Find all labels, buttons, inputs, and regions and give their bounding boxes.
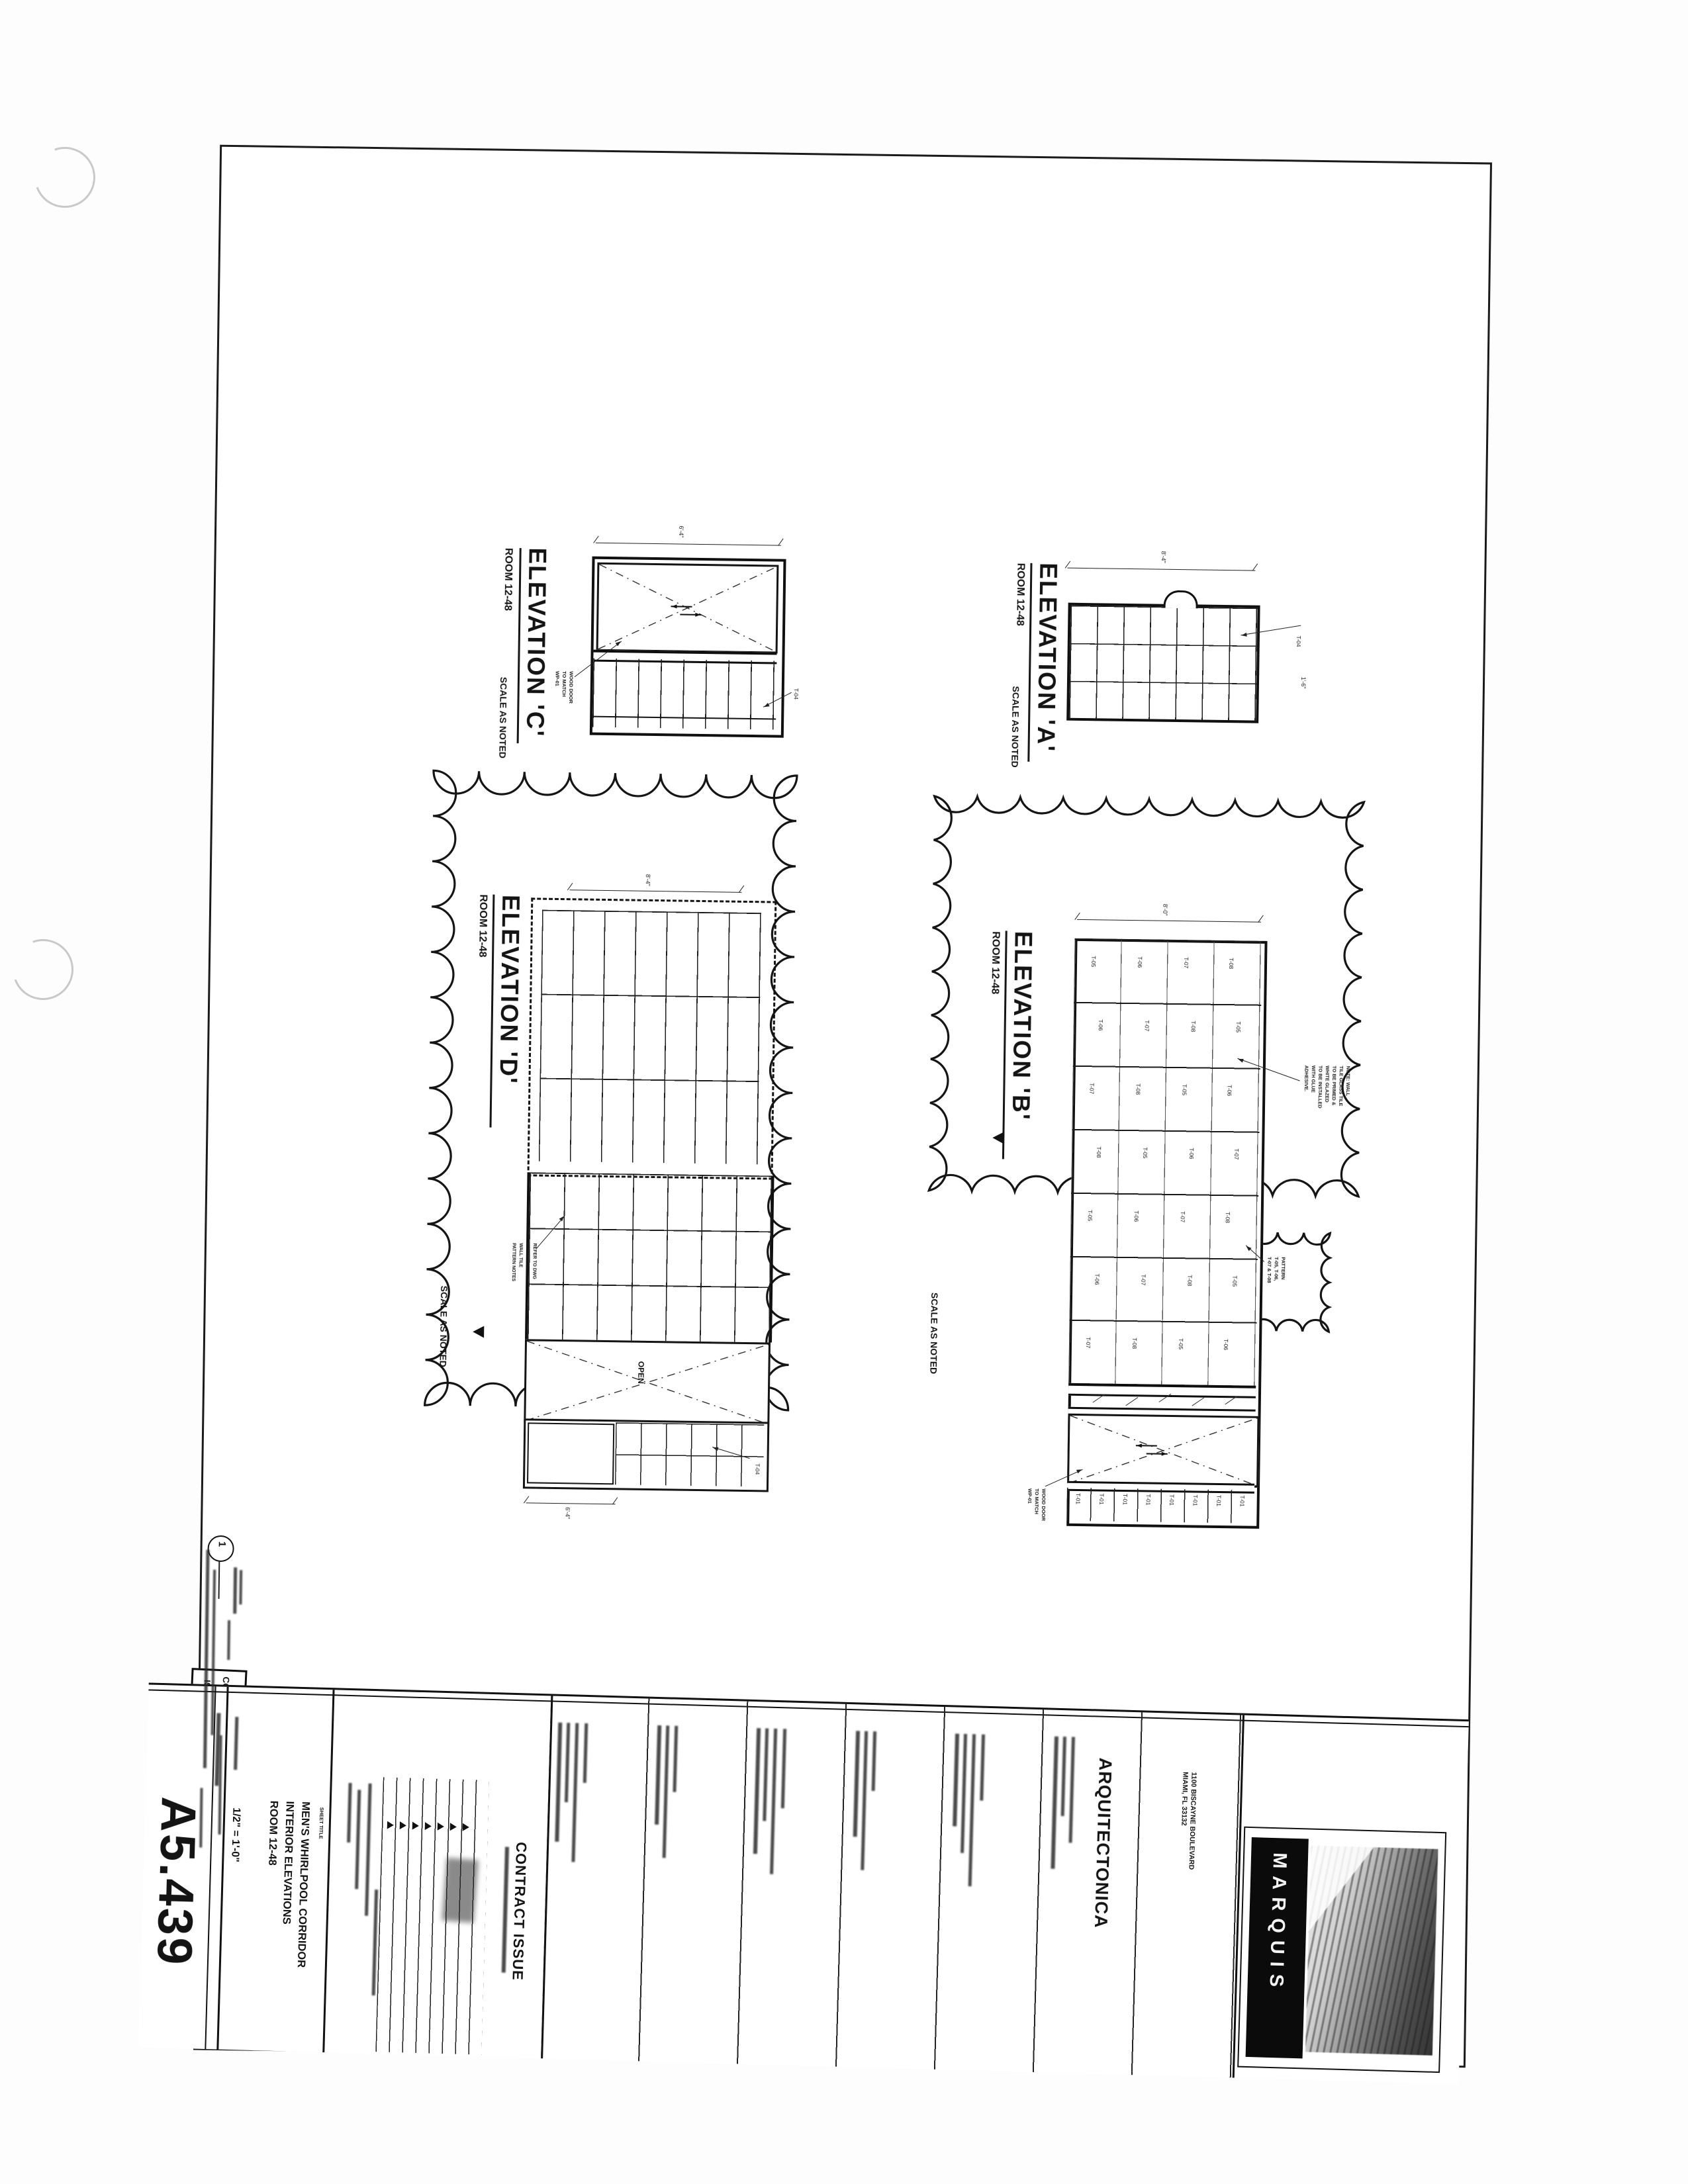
illegible-text — [502, 1847, 509, 1973]
tile-tag: T-08 — [1131, 1338, 1138, 1349]
tile-tag: T-08 — [1186, 1275, 1193, 1286]
text-line: PATTERN — [1279, 1257, 1286, 1283]
glass-arrow-icon — [680, 614, 701, 615]
glass-arrow-icon — [671, 606, 692, 607]
elevation-d-tiles-lower — [525, 1172, 774, 1342]
tile-tag: T-07 — [1088, 1083, 1095, 1094]
tile-tag: T-07 — [1140, 1274, 1147, 1285]
text-line: TO BE PRIMED & — [1330, 1066, 1337, 1109]
revision-delta-icon — [450, 1823, 457, 1831]
elevation-a-scale: SCALE AS NOTED — [1009, 686, 1021, 767]
illegible-text — [355, 1790, 361, 1889]
elevation-b-scale: SCALE AS NOTED — [928, 1293, 940, 1374]
open-x-icon — [526, 1341, 769, 1424]
tile-tag: T-06 — [1094, 1273, 1100, 1285]
elevation-b-mirror — [1067, 1414, 1259, 1488]
elevation-b-base-tiles: T-01T-01T-01T-01T-01T-01T-01T-01 — [1066, 1488, 1254, 1524]
tile-tag: T-08 — [1096, 1146, 1102, 1158]
mirror-x-icon — [1069, 1416, 1257, 1486]
tile-tag: T-08 — [1135, 1083, 1141, 1095]
revision-number: 1 — [216, 1541, 228, 1547]
tile-tag: T-06 — [1223, 1339, 1229, 1350]
glass-arrow-icon — [1147, 1453, 1168, 1454]
tile-tag: T-05 — [1181, 1084, 1188, 1095]
door-note: WOOD DOORTO MATCHWP-01 — [1025, 1488, 1047, 1521]
elevation-b-room: ROOM 12-48 — [988, 931, 1001, 994]
elevation-a-drawing — [1066, 603, 1260, 723]
base-tiles — [615, 1422, 764, 1486]
tile-tag: T-05 — [1178, 1338, 1184, 1349]
text-line: TO BE INSTALLED — [1316, 1066, 1323, 1109]
refer-note: REFER TO DWGA5-448 FORWALL TILEPATTERN N… — [509, 1243, 538, 1282]
revision-delta-icon — [400, 1821, 406, 1829]
open-label: OPEN — [636, 1361, 645, 1384]
tile-note: NOTE: WALLTILE GLASS TILETO BE PRIMED &W… — [1302, 1066, 1351, 1109]
base-blank-panel — [527, 1422, 614, 1484]
revision-marker-stem — [218, 1561, 220, 1599]
tile-tag: T-05 — [1142, 1147, 1149, 1158]
tile-tag: T-01 — [1121, 1494, 1128, 1505]
developer-logo-box: MARQUIS — [1237, 1827, 1446, 2073]
soap-niche-bump — [1164, 590, 1198, 609]
tile-tag: T-07 — [1085, 1337, 1092, 1348]
text-line: WOOD DOOR — [567, 671, 574, 704]
tile-tag: T-06 — [1098, 1019, 1104, 1030]
illegible-text — [233, 1567, 237, 1614]
text-line: PATTERN NOTES — [509, 1243, 516, 1281]
tile-tag: T-01 — [1192, 1494, 1199, 1506]
elevation-b-tile-field: T-05T-06T-07T-08T-06T-07T-08T-05T-07T-08… — [1068, 938, 1262, 1388]
text-line: ADHESIVE. — [1302, 1066, 1309, 1109]
sheet-title-label: SHEET TITLE — [318, 1807, 324, 1839]
tile-tag: T-05 — [1231, 1275, 1238, 1287]
illegible-text — [365, 1784, 372, 1916]
tile-tag: T-07 — [1233, 1148, 1240, 1160]
text-line: TO MATCH — [1033, 1488, 1040, 1521]
logo-band: MARQUIS — [1246, 1837, 1309, 2058]
elevation-d-title: ELEVATION 'D' — [494, 895, 524, 1085]
text-line: A5-448 FOR — [523, 1243, 530, 1281]
tile-tag: T-08 — [1225, 1212, 1231, 1223]
elevation-c-title: ELEVATION 'C' — [521, 547, 551, 737]
tile-tag: T-07 — [1180, 1211, 1186, 1222]
tile-tag: T-06 — [1226, 1085, 1233, 1096]
building-rendering-image — [1305, 1846, 1438, 2056]
elevation-c-mirror — [596, 563, 779, 654]
dimension-label: 8'-4" — [645, 874, 651, 886]
dimension-label: 1'-6" — [1300, 677, 1307, 689]
project-logo: MARQUIS — [1264, 1852, 1290, 1995]
tile-tag: T-04 — [793, 688, 800, 700]
dimension-label: 8'-0" — [1162, 904, 1168, 916]
elevation-d-tiles-upper — [539, 910, 761, 1165]
drawing-sheet: ELEVATION 'C' ROOM 12-48 SCALE AS NOTED … — [193, 145, 1492, 2068]
sheet-scale: 1/2" = 1'-0" — [228, 1807, 242, 1862]
dimension-label: 8'-4" — [1160, 551, 1167, 563]
scanned-page: ELEVATION 'C' ROOM 12-48 SCALE AS NOTED … — [0, 0, 1688, 2184]
dimension-line — [526, 1502, 616, 1504]
text-line: NOTE: WALL — [1344, 1066, 1351, 1109]
elevation-d-scale: SCALE AS NOTED — [438, 1286, 449, 1367]
elevation-c-room: ROOM 12-48 — [501, 548, 514, 611]
elevation-c-scale: SCALE AS NOTED — [497, 677, 509, 758]
text-line: TO MATCH — [560, 671, 567, 704]
door-note: WOOD DOORTO MATCHWP-01 — [553, 671, 574, 704]
tile-tag: T-06 — [1137, 956, 1143, 968]
trim-band — [1068, 1383, 1256, 1398]
sheet-title: MEN'S WHIRLPOOL CORRIDORINTERIOR ELEVATI… — [261, 1800, 314, 1968]
hole-punch-icon — [24, 137, 105, 218]
project-address: 1100 BISCAYNE BOULEVARDMIAMI, FL 33132 — [1178, 1772, 1197, 1870]
consultant-columns — [541, 1696, 1243, 2077]
dimension-label: 6'-4" — [678, 525, 684, 537]
tile-tag: T-05 — [1235, 1021, 1242, 1032]
tile-tag: T-07 — [1144, 1020, 1150, 1031]
text-line: WALL TILE — [516, 1243, 524, 1281]
tile-tag: T-05 — [1090, 956, 1097, 967]
tile-tag: T-01 — [1239, 1495, 1245, 1506]
approval-stamp-blur — [442, 1858, 478, 1923]
illegible-text — [239, 1570, 242, 1604]
tile-tag: T-06 — [1188, 1148, 1195, 1159]
dimension-line — [596, 543, 781, 546]
text-line: WHITE GLAZED — [1323, 1066, 1331, 1109]
revision-delta-icon — [438, 1823, 444, 1831]
text-line: WP-01 — [1025, 1488, 1033, 1521]
dimension-label: 6'-4" — [564, 1507, 571, 1519]
elevation-a-room: ROOM 12-48 — [1013, 563, 1026, 626]
illegible-text — [347, 1783, 352, 1843]
north-flag-icon — [473, 1326, 484, 1338]
hole-punch-icon — [3, 929, 83, 1010]
illegible-text — [227, 1620, 230, 1660]
north-flag-icon — [992, 1132, 1004, 1144]
tile-tag: T-01 — [1145, 1494, 1152, 1505]
revision-delta-icon — [387, 1821, 394, 1829]
elevation-d-open-panel — [524, 1339, 771, 1426]
text-line: WP-01 — [553, 671, 560, 704]
text-line: T-05, T-06, — [1272, 1257, 1280, 1283]
dimension-line — [1067, 568, 1255, 571]
tile-tag: T-08 — [1228, 958, 1235, 969]
tile-tag: T-07 — [1183, 957, 1190, 968]
text-line: T-07 & T-08 — [1265, 1257, 1272, 1283]
tile-tag: T-04 — [1295, 635, 1302, 647]
revision-delta-icon — [463, 1823, 469, 1831]
title-block-divider — [322, 1690, 334, 2052]
sheet-number: A5.439 — [146, 1796, 207, 1968]
revision-1-marker: 1 — [207, 1535, 234, 1563]
tile-tag: T-06 — [1133, 1210, 1140, 1222]
tile-tag: T-08 — [1190, 1021, 1197, 1032]
elevation-b-title: ELEVATION 'B' — [1007, 931, 1037, 1120]
title-block: A5.439 1/2" = 1'-0" MEN'S WHIRLPOOL CORR… — [138, 1682, 1469, 2083]
tile-tag: T-01 — [1168, 1494, 1175, 1506]
elevation-a-title: ELEVATION 'A' — [1031, 563, 1062, 752]
issue-label: CONTRACT ISSUE — [508, 1842, 530, 1981]
glass-arrow-icon — [1136, 1445, 1157, 1446]
tile-tag: T-05 — [1087, 1210, 1094, 1221]
mirror-x-icon — [598, 565, 777, 652]
text-line: TILE GLASS TILE — [1337, 1066, 1344, 1109]
pattern-note: PATTERNT-05, T-06,T-07 & T-08 — [1265, 1257, 1286, 1283]
tile-tag: T-01 — [1098, 1493, 1105, 1504]
tile-tag: T-01 — [1215, 1495, 1222, 1506]
tile-tag: T-01 — [1075, 1493, 1082, 1504]
revision-delta-icon — [412, 1822, 419, 1830]
revision-delta-icon — [425, 1822, 432, 1830]
text-line: WOOD DOOR — [1039, 1488, 1047, 1521]
tile-tag: T-04 — [754, 1463, 761, 1475]
illegible-text — [234, 1717, 238, 1770]
elevation-d-room: ROOM 12-48 — [476, 894, 489, 957]
